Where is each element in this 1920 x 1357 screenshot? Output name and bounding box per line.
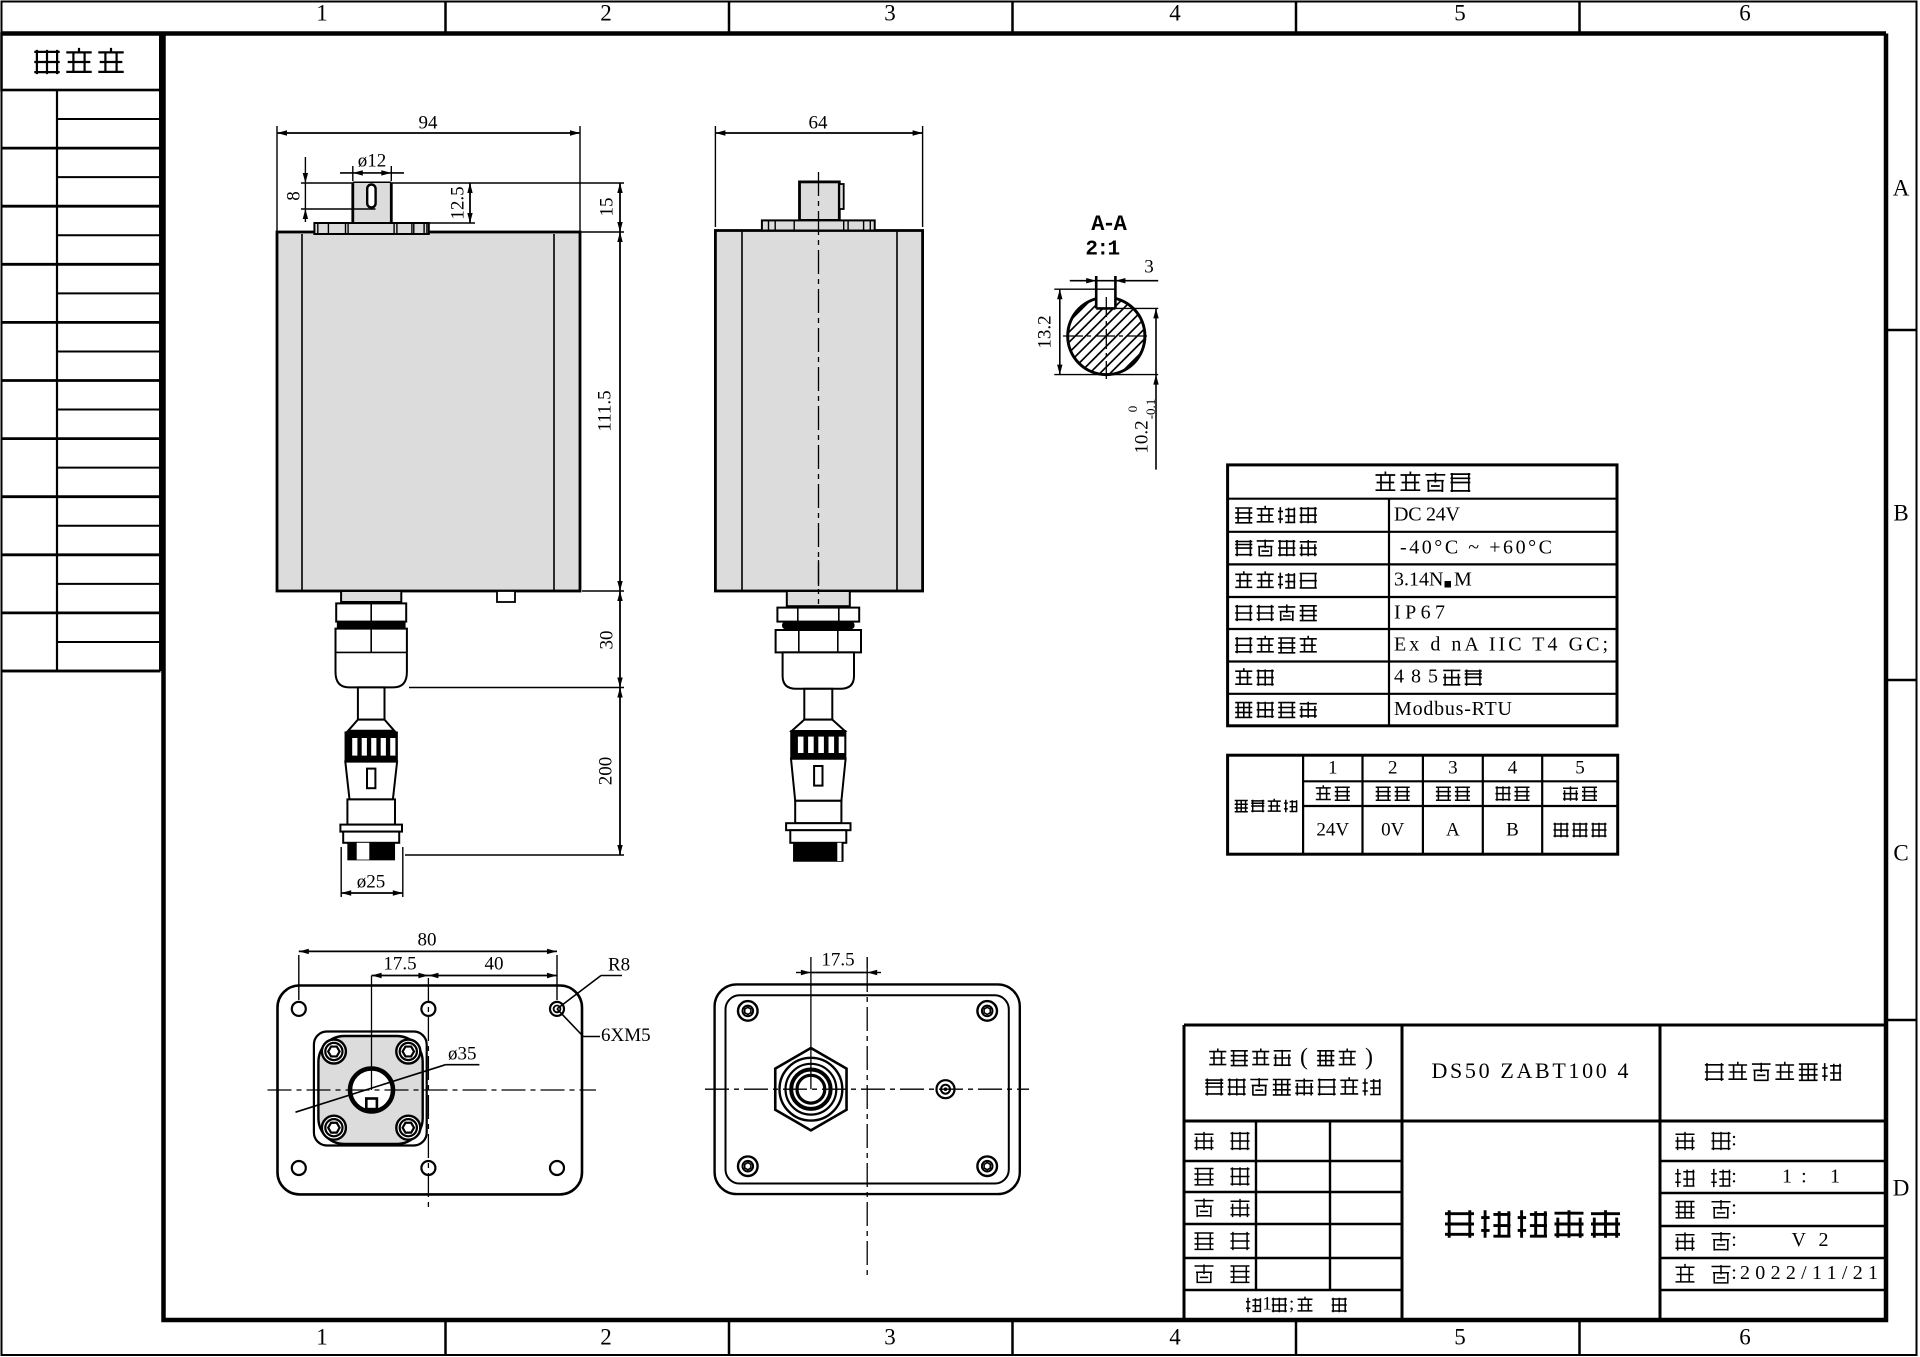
svg-text:V 2: V 2: [1792, 1229, 1829, 1251]
svg-text:3.14N: 3.14N: [1394, 569, 1443, 591]
svg-text:A: A: [1893, 175, 1910, 200]
svg-text:3: 3: [1144, 256, 1154, 277]
svg-text:A-A: A-A: [1091, 212, 1127, 237]
svg-text:DS50 ZABT100 4: DS50 ZABT100 4: [1432, 1058, 1629, 1083]
svg-text:;: ;: [1289, 1293, 1294, 1314]
svg-text:6XM5: 6XM5: [601, 1025, 651, 1046]
svg-text:Ex d nA IIC T4 GC;: Ex d nA IIC T4 GC;: [1394, 634, 1608, 656]
svg-text:2: 2: [600, 1324, 612, 1349]
svg-text:30: 30: [596, 631, 617, 650]
svg-text:15: 15: [596, 198, 617, 217]
svg-text:8: 8: [283, 191, 304, 201]
svg-text:200: 200: [595, 757, 616, 786]
svg-text:12.5: 12.5: [447, 186, 468, 219]
svg-text:4: 4: [1169, 0, 1181, 25]
svg-text:3: 3: [884, 1324, 896, 1349]
svg-text:64: 64: [809, 112, 829, 133]
svg-text:1: 1: [316, 0, 328, 25]
svg-text::: :: [1731, 1229, 1737, 1251]
svg-text:40: 40: [485, 953, 504, 974]
svg-text:ø35: ø35: [448, 1043, 477, 1064]
svg-text:ø12: ø12: [358, 150, 387, 171]
svg-text:1: 1: [1328, 757, 1338, 778]
svg-text:2:1: 2:1: [1085, 239, 1119, 262]
svg-text:0: 0: [1125, 406, 1140, 413]
svg-text:6: 6: [1739, 0, 1751, 25]
svg-text::: :: [1731, 1262, 1737, 1284]
svg-text:(: (: [1300, 1045, 1308, 1071]
svg-text:4: 4: [1169, 1324, 1181, 1349]
svg-text:Modbus-RTU: Modbus-RTU: [1394, 698, 1513, 720]
svg-text:13.2: 13.2: [1034, 315, 1055, 348]
svg-text:0V: 0V: [1381, 819, 1405, 840]
svg-text:3: 3: [884, 0, 896, 25]
svg-text:C: C: [1893, 840, 1908, 865]
svg-text:2: 2: [1388, 757, 1398, 778]
svg-text:80: 80: [418, 929, 437, 950]
svg-text:24V: 24V: [1316, 819, 1349, 840]
svg-text:10.2: 10.2: [1131, 420, 1152, 453]
svg-text:94: 94: [419, 112, 439, 133]
svg-text:5: 5: [1454, 0, 1466, 25]
svg-text:485: 485: [1394, 666, 1438, 688]
svg-text:17.5: 17.5: [821, 949, 854, 970]
svg-text:6: 6: [1739, 1324, 1751, 1349]
svg-text:DC 24V: DC 24V: [1394, 504, 1461, 526]
svg-text:-40°C ~ +60°C: -40°C ~ +60°C: [1400, 537, 1552, 559]
svg-text:D: D: [1893, 1175, 1910, 1200]
svg-text:3: 3: [1448, 757, 1458, 778]
svg-text:B: B: [1893, 500, 1908, 525]
svg-text:5: 5: [1454, 1324, 1466, 1349]
svg-text:5: 5: [1575, 757, 1585, 778]
svg-text::: :: [1731, 1197, 1737, 1219]
svg-text:A: A: [1446, 819, 1460, 840]
svg-text:M: M: [1454, 569, 1472, 591]
svg-text:-0.1: -0.1: [1143, 399, 1158, 420]
svg-text:1: 1: [1262, 1293, 1272, 1314]
svg-text:17.5: 17.5: [383, 953, 416, 974]
svg-text::: :: [1731, 1129, 1737, 1151]
svg-text:111.5: 111.5: [594, 390, 615, 431]
svg-text:2: 2: [600, 0, 612, 25]
svg-text:): ): [1365, 1045, 1373, 1071]
svg-text:4: 4: [1508, 757, 1518, 778]
svg-text:1: 1: [316, 1324, 328, 1349]
svg-text:R8: R8: [608, 954, 630, 975]
svg-text:B: B: [1506, 819, 1519, 840]
svg-text:ø25: ø25: [357, 871, 386, 892]
svg-text::: :: [1731, 1166, 1737, 1188]
